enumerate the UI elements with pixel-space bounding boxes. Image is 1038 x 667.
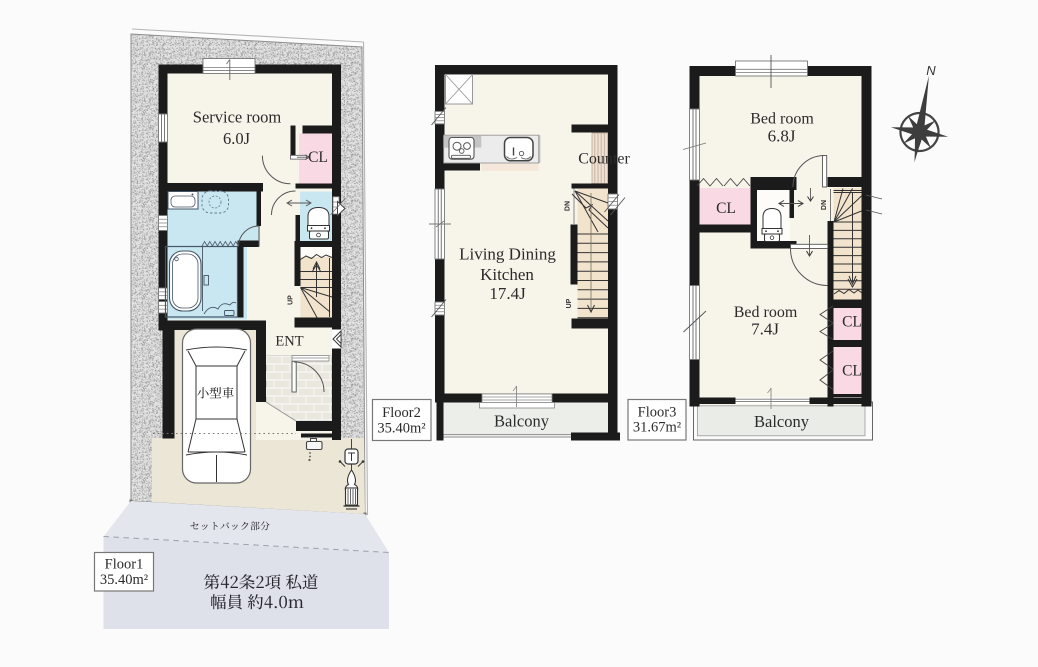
- svg-text:7.4J: 7.4J: [751, 320, 779, 339]
- svg-text:DN: DN: [565, 201, 572, 211]
- svg-text:Floor3: Floor3: [638, 405, 677, 421]
- svg-text:Living Dining: Living Dining: [459, 245, 556, 264]
- svg-text:UP: UP: [288, 295, 295, 305]
- svg-text:Counter: Counter: [578, 151, 630, 168]
- svg-text:Service room: Service room: [193, 108, 282, 127]
- svg-text:UP: UP: [566, 298, 573, 308]
- svg-text:DN: DN: [821, 200, 828, 210]
- svg-text:CL: CL: [842, 363, 862, 380]
- svg-text:Floor2: Floor2: [382, 405, 421, 421]
- svg-text:17.4J: 17.4J: [489, 284, 526, 303]
- svg-text:Bed room: Bed room: [734, 304, 798, 321]
- svg-text:CL: CL: [308, 149, 328, 166]
- svg-text:Bed room: Bed room: [750, 111, 814, 128]
- svg-text:CL: CL: [842, 314, 862, 331]
- svg-text:Balcony: Balcony: [754, 412, 810, 431]
- svg-text:Kitchen: Kitchen: [480, 265, 534, 284]
- svg-text:CL: CL: [716, 200, 736, 217]
- svg-text:N: N: [926, 63, 936, 78]
- svg-text:ENT: ENT: [275, 334, 303, 350]
- svg-text:35.40m²: 35.40m²: [377, 421, 426, 437]
- svg-text:6.8J: 6.8J: [768, 127, 796, 146]
- svg-text:Balcony: Balcony: [494, 412, 550, 431]
- svg-text:Floor1: Floor1: [105, 557, 144, 573]
- svg-text:6.0J: 6.0J: [223, 129, 251, 148]
- svg-text:35.40m²: 35.40m²: [100, 572, 149, 588]
- svg-text:31.67m²: 31.67m²: [633, 420, 682, 436]
